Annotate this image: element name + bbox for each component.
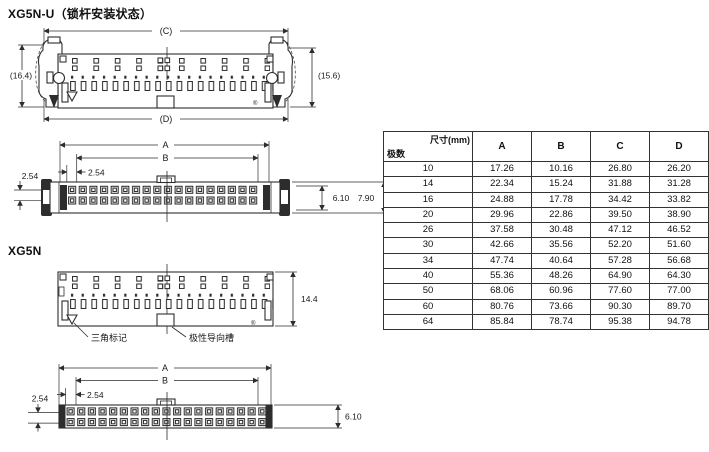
column-header-a: A bbox=[473, 132, 532, 162]
table-row: 2029.9622.8639.5038.90 bbox=[384, 207, 709, 222]
table-cell: 95.38 bbox=[591, 314, 650, 329]
dim-label-inner-height: 6.10 bbox=[333, 193, 350, 203]
table-cell: 57.28 bbox=[591, 253, 650, 268]
table-cell: 39.50 bbox=[591, 207, 650, 222]
table-cell: 48.26 bbox=[532, 269, 591, 284]
dimension-table: 尺寸(mm) 极数 A B C D 1017.2610.1626.8026.20… bbox=[383, 131, 709, 330]
table-cell: 15.24 bbox=[532, 177, 591, 192]
table-cell: 30.48 bbox=[532, 223, 591, 238]
table-cell: 26.80 bbox=[591, 162, 650, 177]
table-row: 1624.8817.7834.4233.82 bbox=[384, 192, 709, 207]
corner-label-dimension: 尺寸(mm) bbox=[430, 132, 472, 146]
dim-label-pitch-v: 2.54 bbox=[22, 171, 39, 181]
xg5n-front-view-drawing: ® 14.4 三角标记 极性导向槽 bbox=[0, 258, 390, 350]
dim-label-pitch-h: 2.54 bbox=[88, 168, 105, 178]
table-cell: 22.86 bbox=[532, 207, 591, 222]
table-cell: 26.20 bbox=[650, 162, 709, 177]
section-title-xg5n-u: XG5N-U（锁杆安装状态） bbox=[8, 5, 152, 22]
registration-mark: ® bbox=[251, 320, 256, 327]
dim-14-4: 14.4 bbox=[275, 272, 318, 326]
table-cell: 89.70 bbox=[650, 299, 709, 314]
polarity-guide-tab bbox=[157, 399, 175, 405]
table-row: 6485.8478.7495.3894.78 bbox=[384, 314, 709, 329]
table-row: 5068.0660.9677.6077.00 bbox=[384, 284, 709, 299]
table-cell: 40.64 bbox=[532, 253, 591, 268]
table-cell: 29.96 bbox=[473, 207, 532, 222]
table-cell: 38.90 bbox=[650, 207, 709, 222]
table-cell: 68.06 bbox=[473, 284, 532, 299]
dim-6-10: 6.10 bbox=[296, 186, 350, 210]
table-cell: 50 bbox=[384, 284, 473, 299]
callout-label-triangle: 三角标记 bbox=[91, 332, 127, 343]
table-cell: 10 bbox=[384, 162, 473, 177]
dim-label-b: B bbox=[162, 376, 168, 386]
dim-label-left-height: (16.4) bbox=[10, 71, 32, 81]
table-row: 2637.5830.4847.1246.52 bbox=[384, 223, 709, 238]
table-cell: 78.74 bbox=[532, 314, 591, 329]
table-cell: 34 bbox=[384, 253, 473, 268]
table-cell: 37.58 bbox=[473, 223, 532, 238]
table-cell: 55.36 bbox=[473, 269, 532, 284]
table-cell: 33.82 bbox=[650, 192, 709, 207]
table-header-row: 尺寸(mm) 极数 A B C D bbox=[384, 132, 709, 162]
column-header-c: C bbox=[591, 132, 650, 162]
table-cell: 64.90 bbox=[591, 269, 650, 284]
corner-label-poles: 极数 bbox=[384, 147, 405, 161]
table-cell: 31.28 bbox=[650, 177, 709, 192]
table-cell: 73.66 bbox=[532, 299, 591, 314]
table-cell: 52.20 bbox=[591, 238, 650, 253]
table-cell: 47.12 bbox=[591, 223, 650, 238]
dim-label-d: (D) bbox=[160, 114, 173, 124]
table-cell: 22.34 bbox=[473, 177, 532, 192]
section-title-xg5n: XG5N bbox=[8, 244, 41, 258]
dim-label-a: A bbox=[162, 363, 168, 373]
dim-label-b: B bbox=[162, 153, 168, 163]
dim-label-c: (C) bbox=[160, 26, 173, 36]
table-cell: 51.60 bbox=[650, 238, 709, 253]
dim-pitch-vertical: 2.54 bbox=[28, 394, 59, 432]
polarity-guide bbox=[157, 96, 174, 108]
xg5n-bottom-view-drawing: A B 2.54 2.54 bbox=[0, 350, 390, 452]
table-cell: 60 bbox=[384, 299, 473, 314]
registration-mark: ® bbox=[253, 100, 258, 107]
table-cell: 80.76 bbox=[473, 299, 532, 314]
table-cell: 30 bbox=[384, 238, 473, 253]
table-row: 3042.6635.5652.2051.60 bbox=[384, 238, 709, 253]
table-cell: 77.60 bbox=[591, 284, 650, 299]
table-corner-cell: 尺寸(mm) 极数 bbox=[384, 132, 473, 162]
dim-label-right-height: (15.6) bbox=[318, 71, 340, 81]
table-cell: 42.66 bbox=[473, 238, 532, 253]
table-cell: 35.56 bbox=[532, 238, 591, 253]
table-row: 1017.2610.1626.8026.20 bbox=[384, 162, 709, 177]
table-cell: 14 bbox=[384, 177, 473, 192]
table-cell: 34.42 bbox=[591, 192, 650, 207]
table-row: 3447.7440.6457.2856.68 bbox=[384, 253, 709, 268]
connector-body: ® bbox=[58, 264, 273, 334]
table-cell: 16 bbox=[384, 192, 473, 207]
table-cell: 56.68 bbox=[650, 253, 709, 268]
table-cell: 90.30 bbox=[591, 299, 650, 314]
table-cell: 85.84 bbox=[473, 314, 532, 329]
table-cell: 20 bbox=[384, 207, 473, 222]
dim-pitch-vertical: 2.54 bbox=[14, 171, 42, 210]
dim-label-height: 6.10 bbox=[345, 412, 362, 422]
xg5nu-bottom-view-drawing: A B 2.54 2.54 bbox=[0, 137, 390, 240]
table-cell: 24.88 bbox=[473, 192, 532, 207]
table-cell: 31.88 bbox=[591, 177, 650, 192]
dim-label-pitch-v: 2.54 bbox=[32, 394, 49, 404]
table-cell: 40 bbox=[384, 269, 473, 284]
dim-label-pitch-h: 2.54 bbox=[87, 390, 104, 400]
table-cell: 60.96 bbox=[532, 284, 591, 299]
polarity-guide bbox=[157, 314, 174, 326]
dim-label-outer-height: 7.90 bbox=[358, 193, 375, 203]
dim-label-a: A bbox=[162, 140, 168, 150]
callout-polarity-guide: 极性导向槽 bbox=[172, 327, 234, 343]
table-cell: 47.74 bbox=[473, 253, 532, 268]
callout-label-polarity: 极性导向槽 bbox=[189, 332, 234, 343]
dim-label-height: 14.4 bbox=[301, 294, 318, 304]
connector-body: ® bbox=[58, 47, 273, 108]
dim-d: (D) bbox=[44, 114, 288, 124]
column-header-d: D bbox=[650, 132, 709, 162]
table-cell: 94.78 bbox=[650, 314, 709, 329]
table-cell: 17.26 bbox=[473, 162, 532, 177]
datasheet-page: XG5N-U（锁杆安装状态） bbox=[0, 0, 709, 452]
table-row: 6080.7673.6690.3089.70 bbox=[384, 299, 709, 314]
polarity-guide-tab bbox=[157, 176, 175, 183]
table-cell: 64 bbox=[384, 314, 473, 329]
xg5nu-front-view-drawing: (C) (D) (16.4) (15.6) bbox=[0, 25, 390, 137]
dim-15-6: (15.6) bbox=[288, 48, 340, 107]
table-cell: 77.00 bbox=[650, 284, 709, 299]
table-cell: 10.16 bbox=[532, 162, 591, 177]
connector-body bbox=[41, 171, 290, 222]
dim-6-10: 6.10 bbox=[274, 405, 362, 428]
table-cell: 17.78 bbox=[532, 192, 591, 207]
table-cell: 26 bbox=[384, 223, 473, 238]
column-header-b: B bbox=[532, 132, 591, 162]
table-row: 1422.3415.2431.8831.28 bbox=[384, 177, 709, 192]
table-cell: 64.30 bbox=[650, 269, 709, 284]
table-row: 4055.3648.2664.9064.30 bbox=[384, 269, 709, 284]
table-cell: 46.52 bbox=[650, 223, 709, 238]
